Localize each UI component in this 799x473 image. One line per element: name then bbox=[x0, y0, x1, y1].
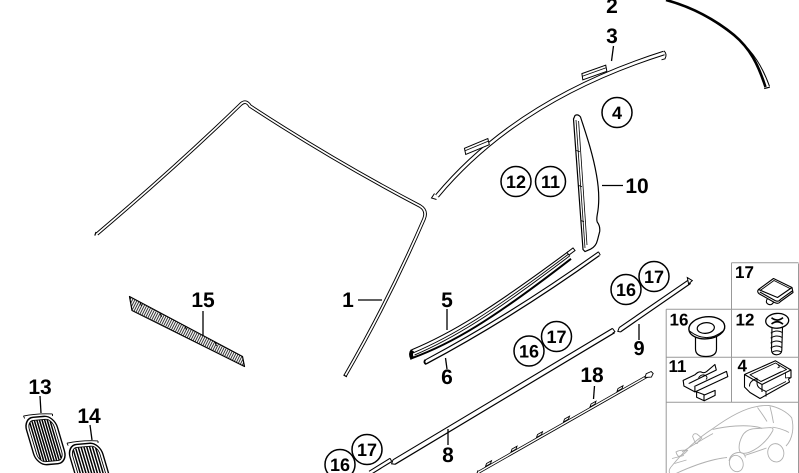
svg-text:16: 16 bbox=[330, 455, 350, 473]
svg-text:17: 17 bbox=[644, 267, 664, 287]
svg-text:5: 5 bbox=[441, 289, 453, 312]
svg-text:17: 17 bbox=[546, 327, 566, 347]
svg-text:14: 14 bbox=[77, 405, 101, 428]
svg-text:13: 13 bbox=[28, 376, 51, 399]
svg-text:3: 3 bbox=[606, 25, 618, 48]
svg-text:12: 12 bbox=[506, 172, 526, 192]
svg-text:2: 2 bbox=[606, 0, 618, 18]
svg-text:12: 12 bbox=[736, 311, 755, 330]
svg-text:1: 1 bbox=[342, 289, 354, 312]
svg-text:16: 16 bbox=[616, 280, 636, 300]
svg-text:17: 17 bbox=[735, 263, 754, 282]
svg-text:17: 17 bbox=[357, 440, 377, 460]
svg-text:16: 16 bbox=[519, 342, 539, 362]
svg-text:11: 11 bbox=[541, 172, 560, 192]
svg-text:10: 10 bbox=[625, 175, 648, 198]
svg-text:15: 15 bbox=[191, 289, 215, 312]
svg-text:18: 18 bbox=[580, 364, 604, 387]
svg-text:8: 8 bbox=[442, 444, 454, 467]
svg-text:4: 4 bbox=[612, 103, 622, 123]
svg-text:11: 11 bbox=[669, 357, 687, 376]
svg-text:9: 9 bbox=[633, 338, 644, 360]
svg-text:16: 16 bbox=[670, 311, 689, 330]
svg-text:4: 4 bbox=[738, 357, 748, 376]
svg-text:6: 6 bbox=[441, 366, 453, 389]
